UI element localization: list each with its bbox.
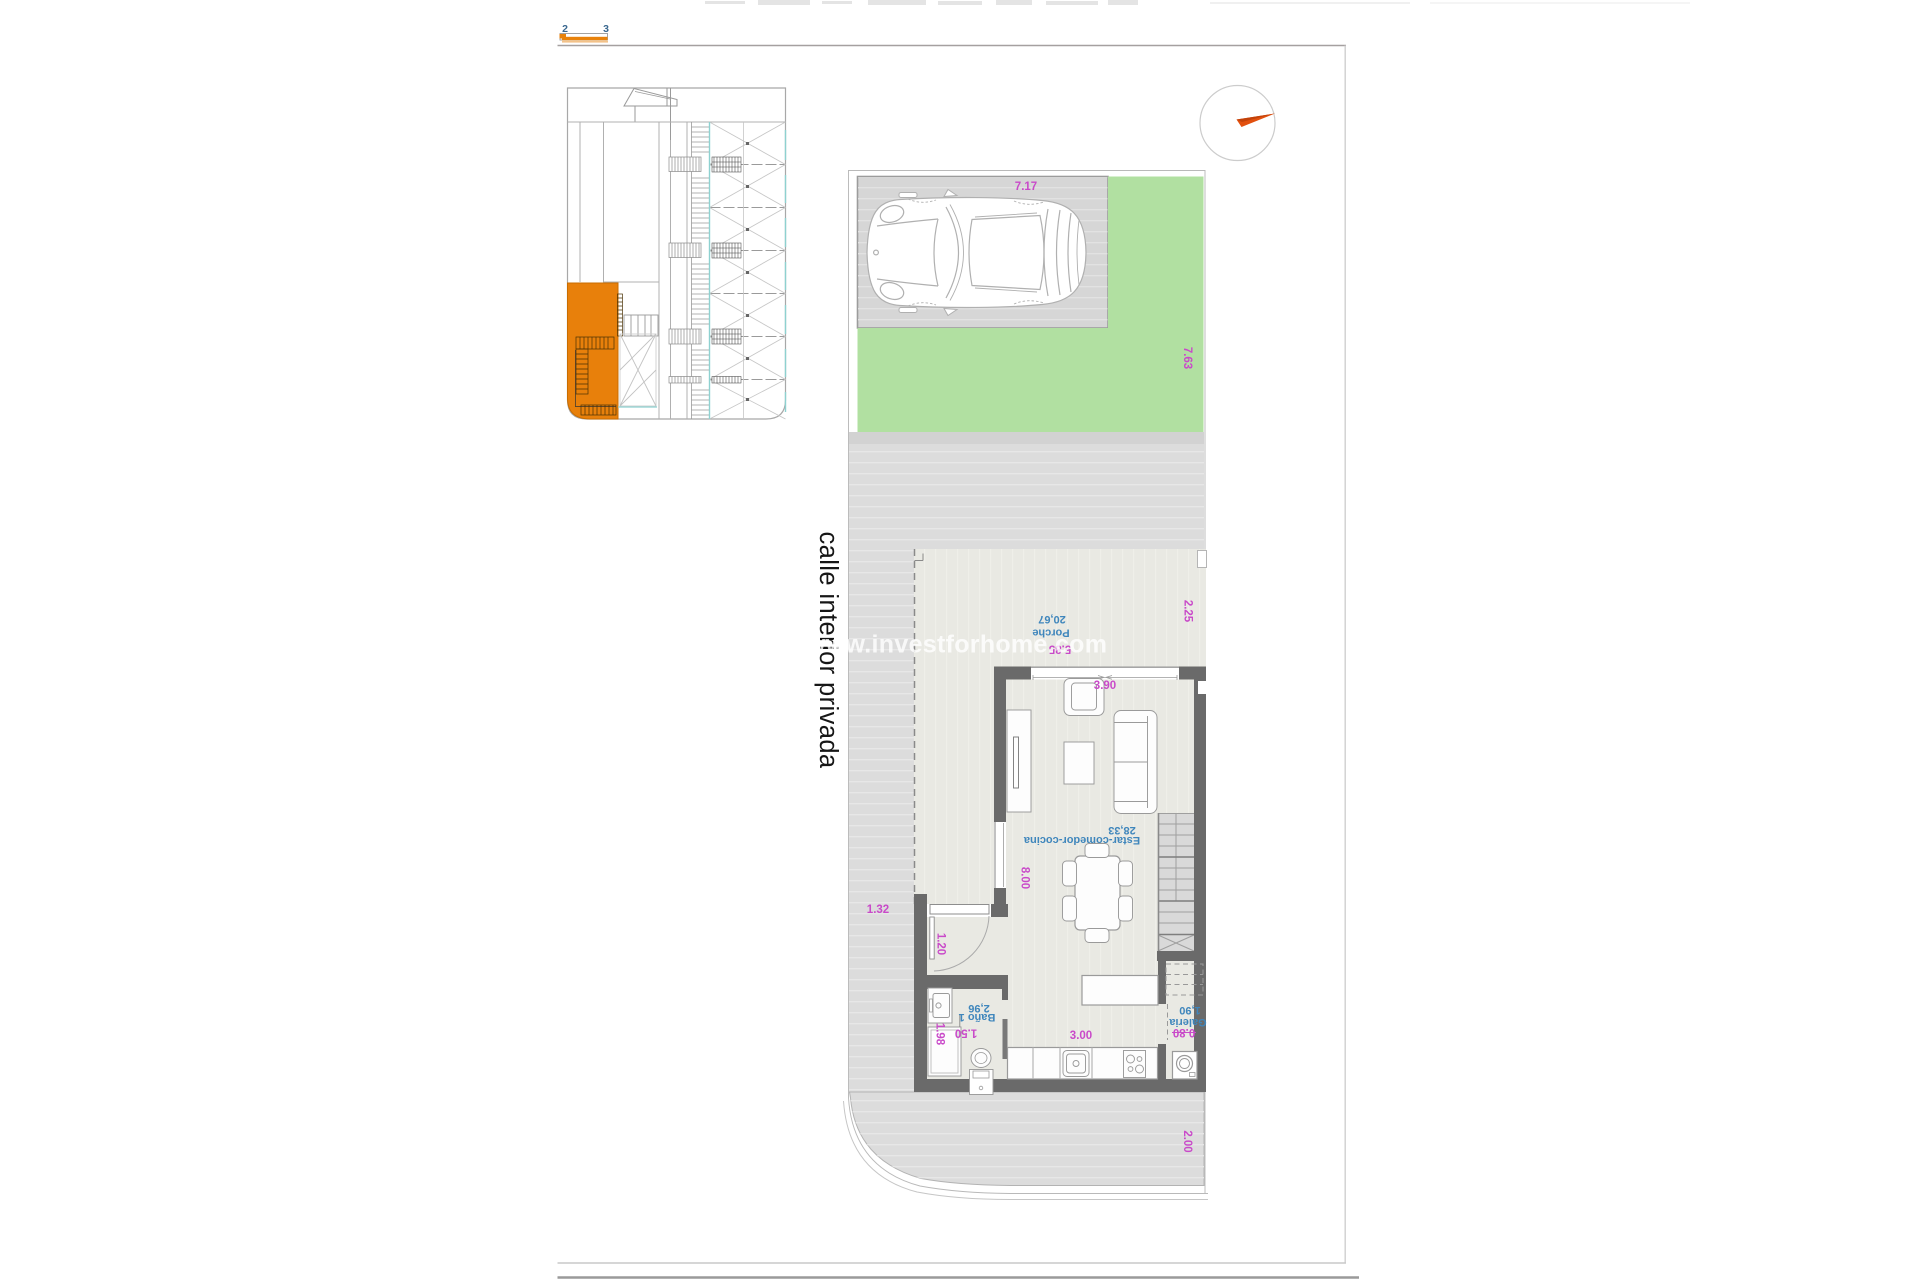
svg-text:7.17: 7.17 xyxy=(1015,181,1037,193)
svg-text:1.20: 1.20 xyxy=(935,933,947,955)
svg-text:1.98: 1.98 xyxy=(934,1023,946,1046)
svg-text:Galeria: Galeria xyxy=(1168,1016,1206,1028)
svg-text:8.00: 8.00 xyxy=(1019,867,1031,889)
svg-text:www.investforhome.com: www.investforhome.com xyxy=(805,631,1107,659)
svg-text:1,90: 1,90 xyxy=(1179,1004,1200,1016)
svg-text:2.25: 2.25 xyxy=(1182,600,1194,623)
svg-text:28,33: 28,33 xyxy=(1108,824,1136,836)
svg-text:7.63: 7.63 xyxy=(1181,347,1193,369)
svg-text:3.90: 3.90 xyxy=(1094,680,1116,692)
svg-text:3.00: 3.00 xyxy=(1070,1030,1092,1042)
svg-text:2,96: 2,96 xyxy=(968,1002,989,1014)
svg-text:1.50: 1.50 xyxy=(955,1027,977,1039)
svg-text:2.00: 2.00 xyxy=(1181,1130,1193,1152)
svg-text:1.32: 1.32 xyxy=(867,904,889,916)
svg-text:20,67: 20,67 xyxy=(1038,613,1066,625)
